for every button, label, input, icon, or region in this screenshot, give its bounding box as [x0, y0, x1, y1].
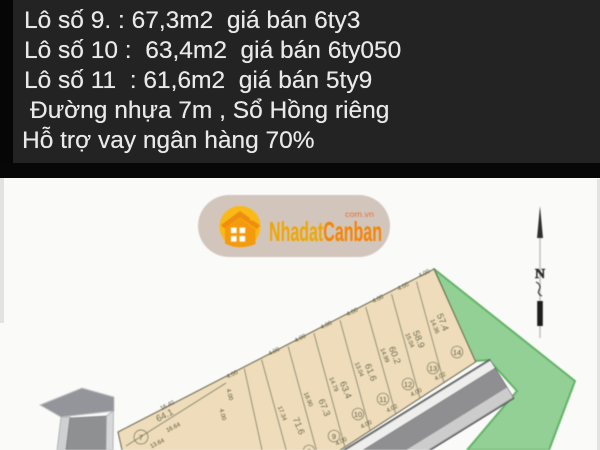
svg-text:14: 14 — [453, 348, 461, 357]
svg-text:N: N — [535, 267, 545, 282]
svg-text:7: 7 — [139, 433, 143, 442]
svg-text:11: 11 — [379, 395, 387, 404]
svg-text:10: 10 — [354, 410, 362, 419]
svg-text:com.vn: com.vn — [345, 209, 374, 219]
svg-text:12: 12 — [404, 380, 412, 389]
svg-text:13: 13 — [429, 364, 437, 373]
svg-text:9: 9 — [332, 432, 336, 441]
svg-text:NhadatCanban: NhadatCanban — [269, 216, 382, 247]
